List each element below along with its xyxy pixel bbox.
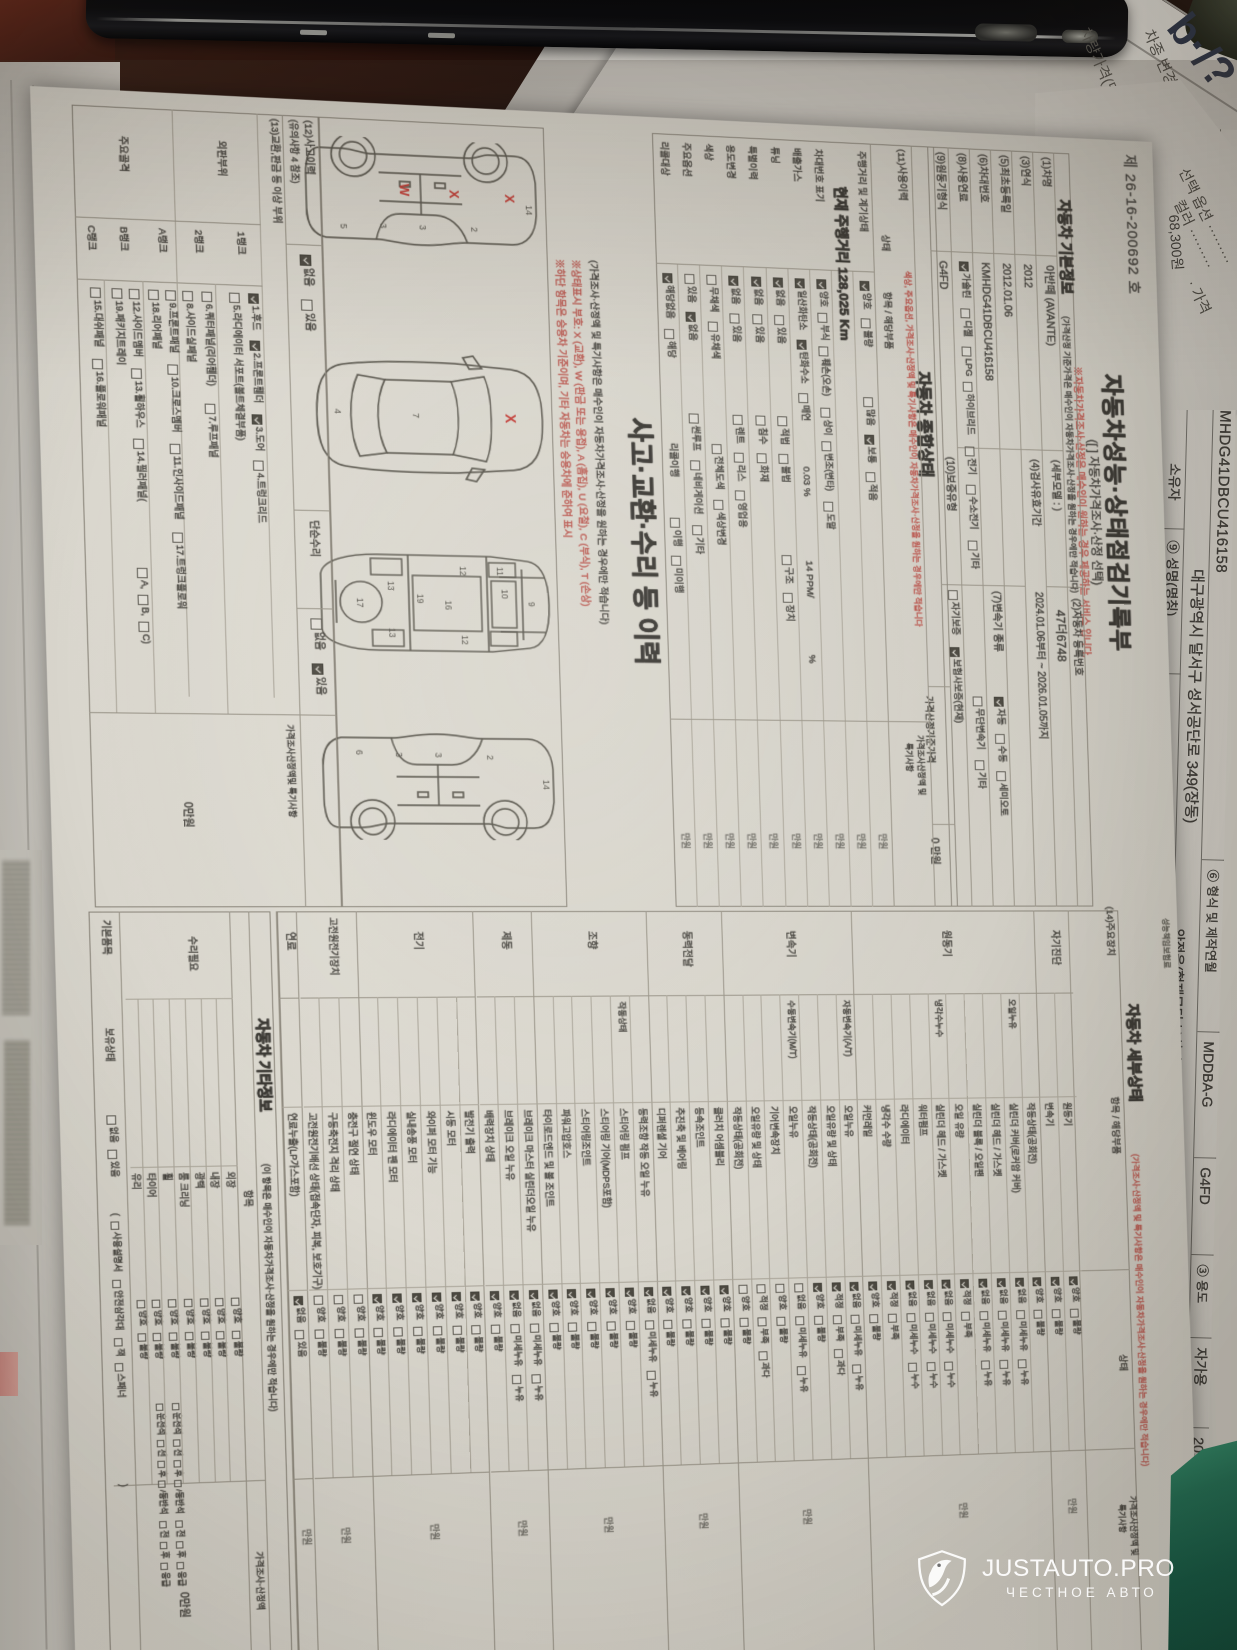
svg-text:2: 2 [469,227,480,233]
svg-text:13: 13 [386,581,397,591]
svg-text:X: X [502,194,518,204]
svg-text:3: 3 [433,752,444,757]
svg-text:7: 7 [411,413,422,418]
svg-text:16: 16 [443,600,454,610]
svg-text:W: W [396,183,412,197]
svg-text:9: 9 [526,602,536,607]
svg-text:X: X [446,190,462,200]
svg-text:5: 5 [338,223,349,229]
svg-text:4: 4 [332,408,343,413]
svg-text:14: 14 [524,205,535,216]
svg-text:13: 13 [387,628,398,638]
svg-text:19: 19 [415,594,426,604]
svg-text:12: 12 [460,635,471,645]
svg-text:11: 11 [495,567,506,576]
svg-text:3: 3 [378,223,389,229]
svg-text:12: 12 [458,566,469,576]
svg-text:3: 3 [394,752,405,757]
svg-text:6: 6 [354,750,365,755]
svg-text:2: 2 [485,755,496,760]
svg-text:10: 10 [499,589,510,599]
svg-text:14: 14 [541,780,552,790]
svg-text:3: 3 [417,225,428,231]
svg-text:X: X [502,414,519,425]
svg-text:17: 17 [355,598,366,608]
